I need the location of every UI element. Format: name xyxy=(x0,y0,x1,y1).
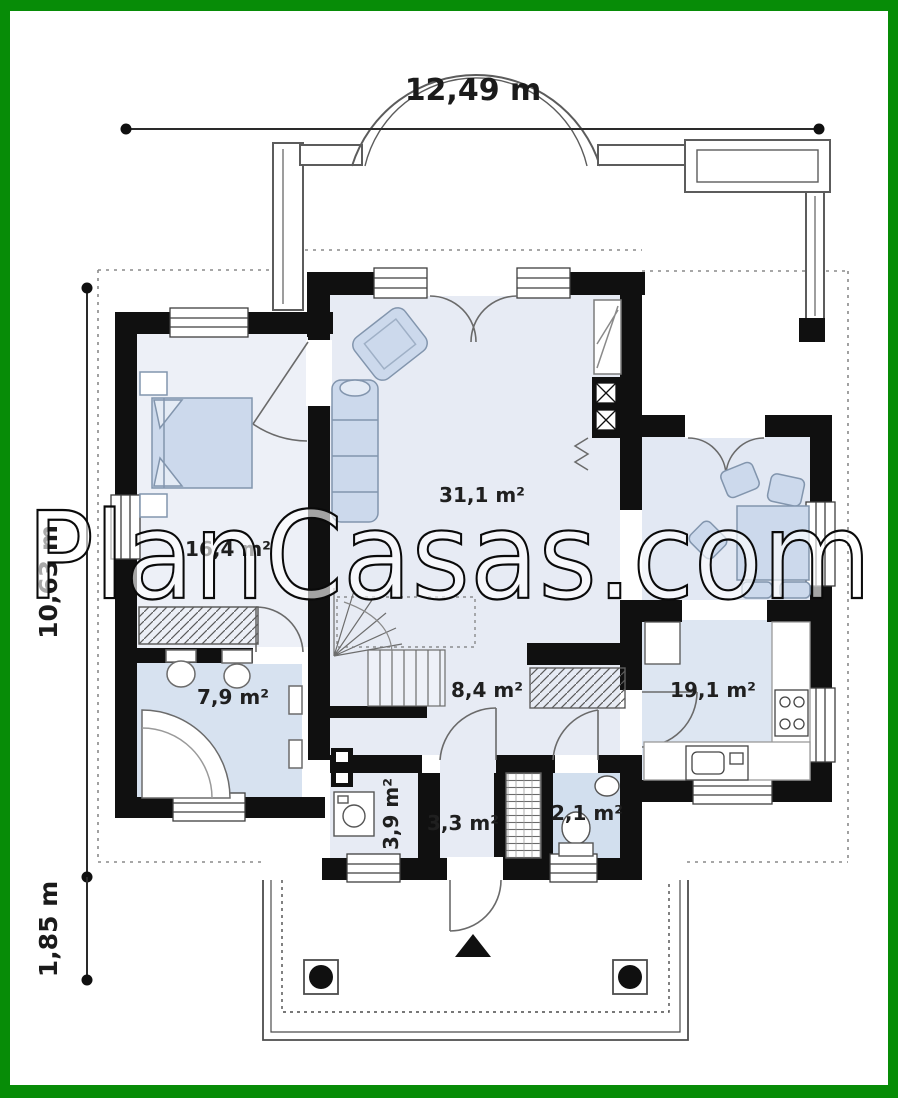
room-label-wc: 2,1 m² xyxy=(551,801,623,825)
room-label-utility: 3,9 m² xyxy=(379,778,403,850)
window-utility xyxy=(347,854,400,882)
terrace-planter xyxy=(685,140,830,192)
watermark-text: PlanCasas.com xyxy=(27,488,872,627)
radiator xyxy=(289,686,302,714)
window-living-right xyxy=(517,268,570,298)
room-label-vestibule: 3,3 m² xyxy=(427,811,499,835)
entry-porch xyxy=(263,880,688,1040)
window-living-left xyxy=(374,268,427,298)
entry-arrow xyxy=(455,934,491,957)
wc-sink xyxy=(595,776,619,796)
floor-plan-image: 12,49 m 10,63 m 1,85 m 16,4 m² 31,1 m² 7… xyxy=(0,0,898,1098)
wc-toilet-tank xyxy=(559,843,593,856)
room-label-bathroom: 7,9 m² xyxy=(197,685,269,709)
sink-tank xyxy=(166,650,196,662)
terrace-rail-right xyxy=(598,145,690,165)
nightstand xyxy=(140,372,167,395)
dimension-porch-label: 1,85 m xyxy=(34,881,63,977)
room-label-kitchen: 19,1 m² xyxy=(670,678,756,702)
dimension-top-label: 12,49 m xyxy=(405,73,542,108)
room-label-hall: 8,4 m² xyxy=(451,678,523,702)
bathroom-sink xyxy=(167,661,195,687)
washing-machine xyxy=(334,792,374,836)
window-bedroom-top xyxy=(170,308,248,337)
kitchen-stove xyxy=(775,690,808,736)
entry-door-arc xyxy=(450,880,501,931)
window-wc xyxy=(550,854,597,882)
vestibule-floor xyxy=(440,755,496,858)
terrace-left-wall xyxy=(273,143,303,310)
hall-wardrobe xyxy=(530,668,625,708)
fridge xyxy=(645,622,680,664)
toilet-tank xyxy=(222,650,252,663)
entry-closet xyxy=(506,773,541,858)
floor-plan-svg: 12,49 m 10,63 m 1,85 m 16,4 m² 31,1 m² 7… xyxy=(0,0,898,1098)
kitchen-sink xyxy=(686,746,748,780)
terrace-column xyxy=(799,318,825,342)
radiator xyxy=(289,740,302,768)
